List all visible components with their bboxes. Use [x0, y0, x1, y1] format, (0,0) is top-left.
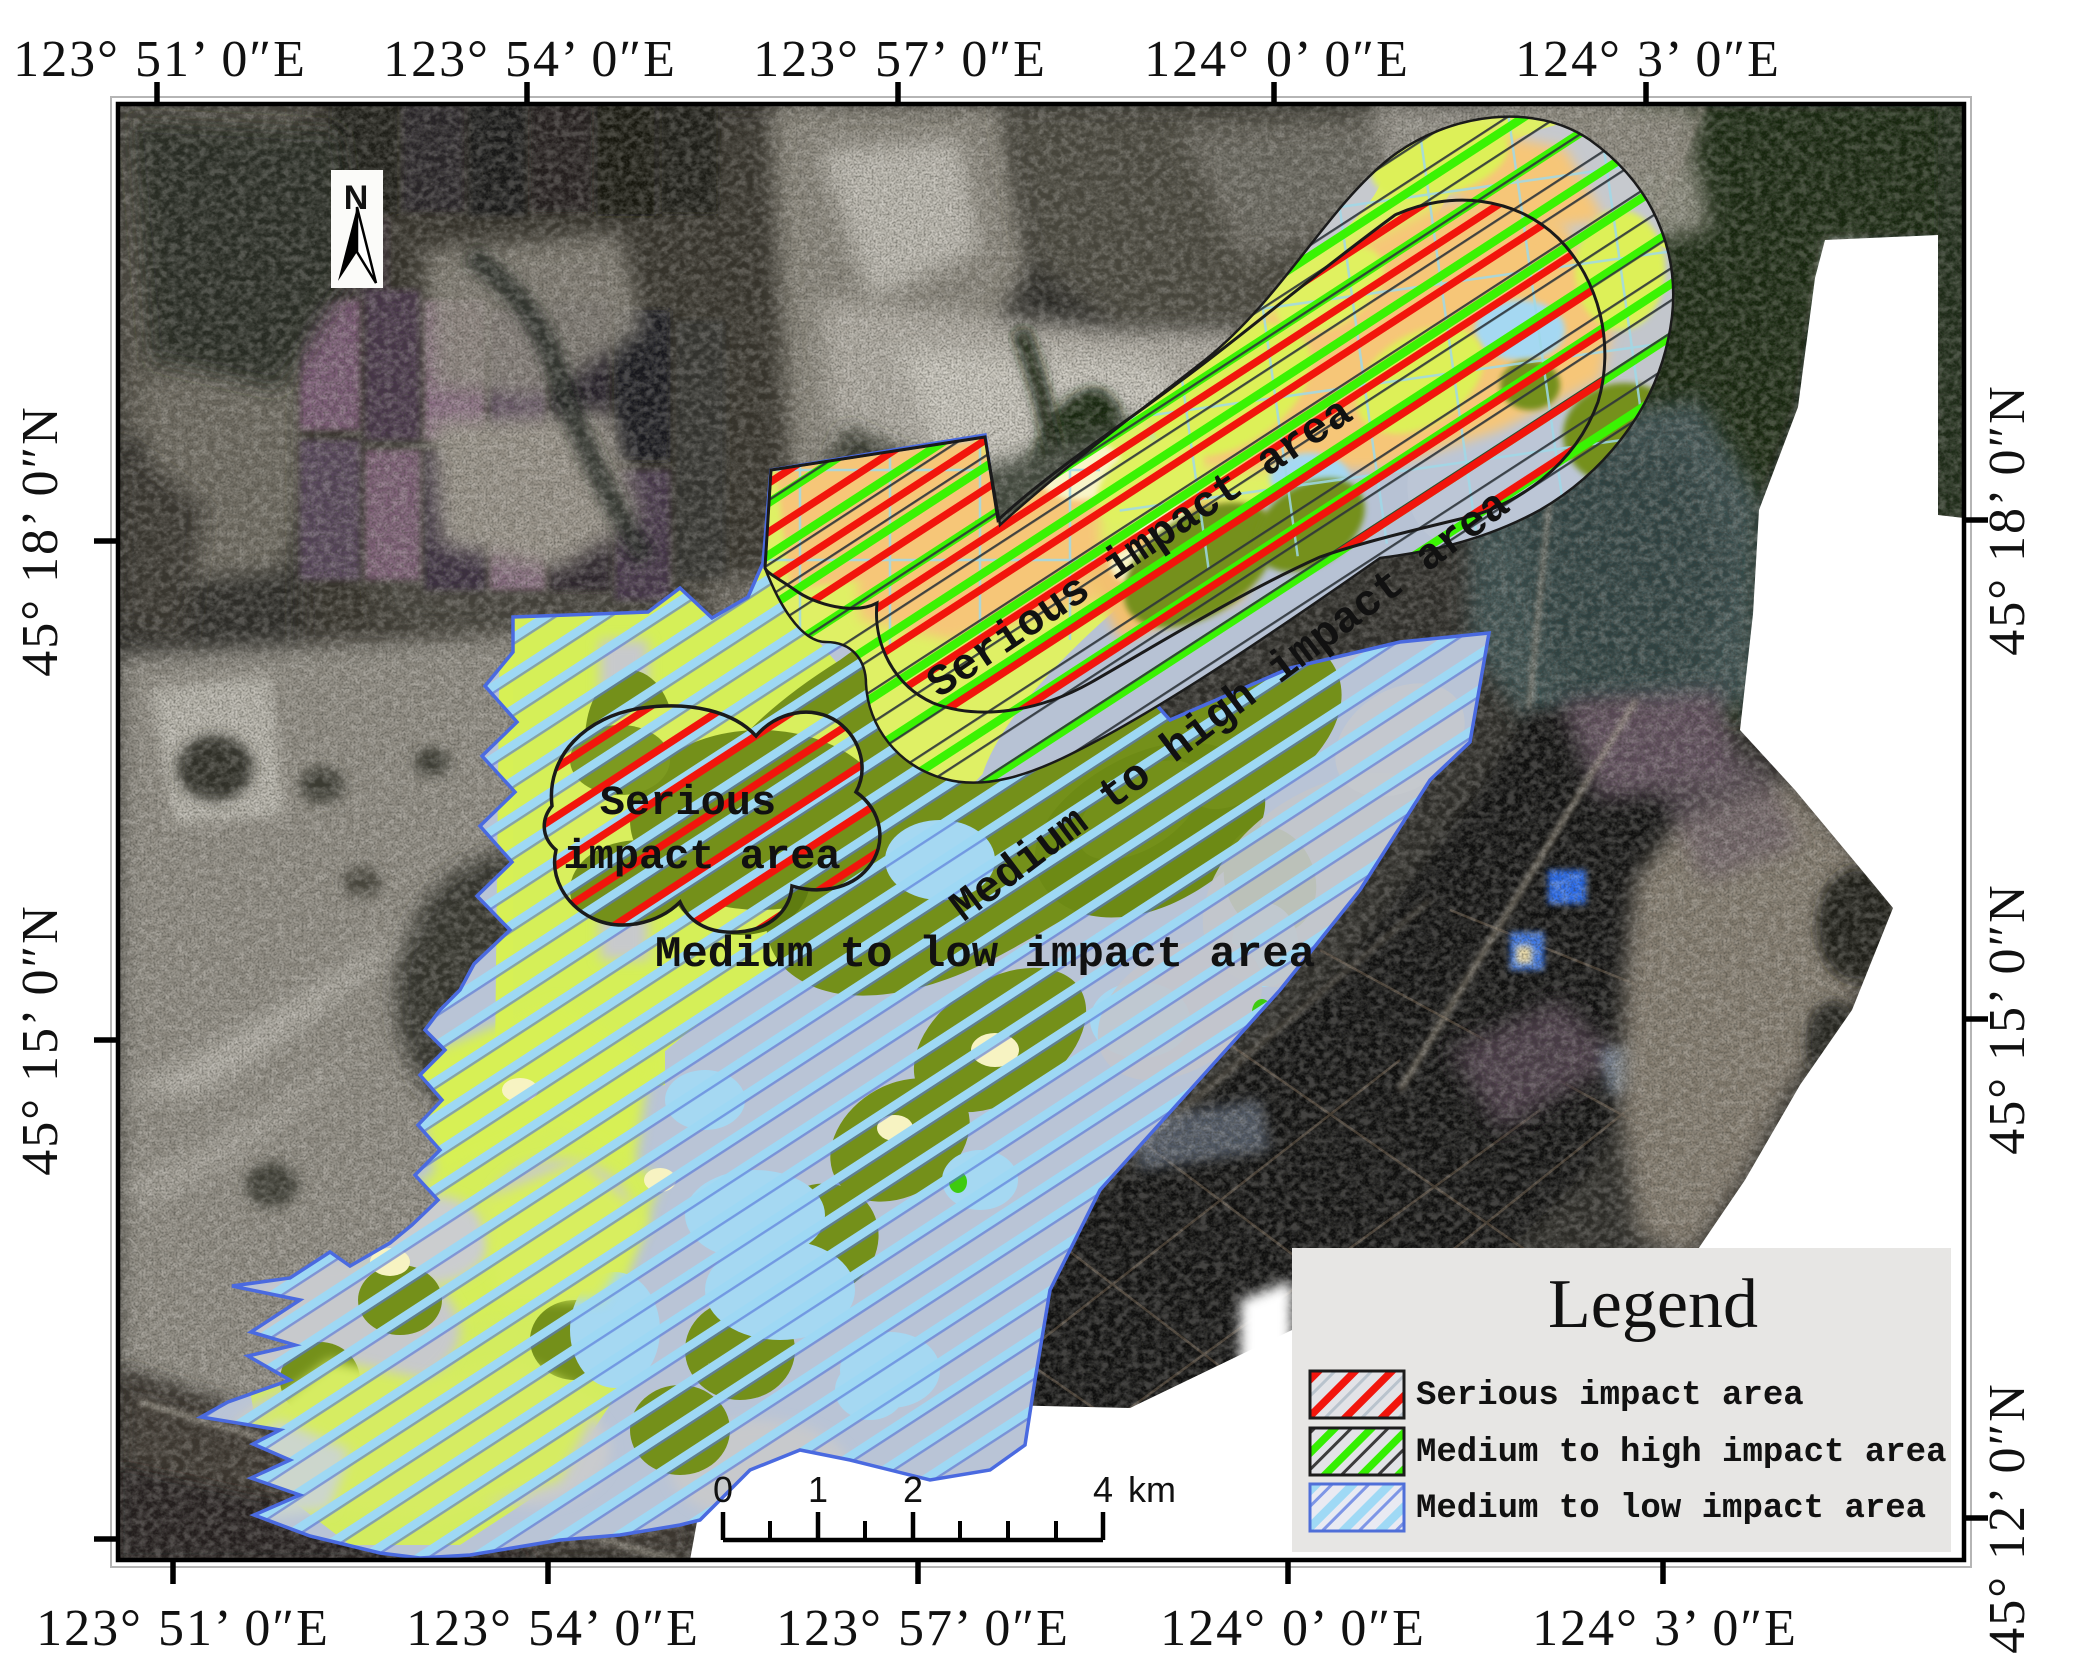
svg-text:45° 18’ 0″N: 45° 18’ 0″N: [12, 405, 69, 676]
svg-text:Medium to high impact area: Medium to high impact area: [1416, 1434, 1947, 1472]
svg-text:Medium to low impact area: Medium to low impact area: [1416, 1490, 1926, 1528]
svg-text:124° 0’ 0″E: 124° 0’ 0″E: [1160, 1600, 1426, 1657]
svg-text:45° 12’ 0″N: 45° 12’ 0″N: [1979, 1382, 2036, 1653]
svg-text:124° 0’ 0″E: 124° 0’ 0″E: [1144, 31, 1410, 88]
svg-text:Medium to low impact area: Medium to low impact area: [655, 930, 1315, 980]
svg-text:Serious impact area: Serious impact area: [1416, 1377, 1804, 1415]
svg-text:123° 57’ 0″E: 123° 57’ 0″E: [776, 1600, 1070, 1657]
svg-text:123° 54’ 0″E: 123° 54’ 0″E: [383, 31, 677, 88]
svg-text:123° 51’ 0″E: 123° 51’ 0″E: [13, 31, 307, 88]
svg-text:km: km: [1128, 1469, 1176, 1510]
svg-text:124° 3’ 0″E: 124° 3’ 0″E: [1532, 1600, 1798, 1657]
svg-text:124° 3’ 0″E: 124° 3’ 0″E: [1515, 31, 1781, 88]
svg-text:impact area: impact area: [563, 833, 840, 881]
svg-text:2: 2: [903, 1469, 923, 1510]
svg-text:4: 4: [1093, 1469, 1113, 1510]
svg-text:0: 0: [713, 1469, 733, 1510]
svg-text:45° 18’ 0″N: 45° 18’ 0″N: [1979, 384, 2036, 655]
svg-text:123° 51’ 0″E: 123° 51’ 0″E: [36, 1600, 330, 1657]
svg-text:Legend: Legend: [1548, 1266, 1758, 1343]
svg-text:123° 57’ 0″E: 123° 57’ 0″E: [753, 31, 1047, 88]
svg-text:45° 15’ 0″N: 45° 15’ 0″N: [12, 904, 69, 1175]
svg-text:Serious: Serious: [600, 779, 776, 827]
svg-text:123° 54’ 0″E: 123° 54’ 0″E: [406, 1600, 700, 1657]
svg-text:45° 15’ 0″N: 45° 15’ 0″N: [1979, 883, 2036, 1154]
svg-text:1: 1: [808, 1469, 828, 1510]
